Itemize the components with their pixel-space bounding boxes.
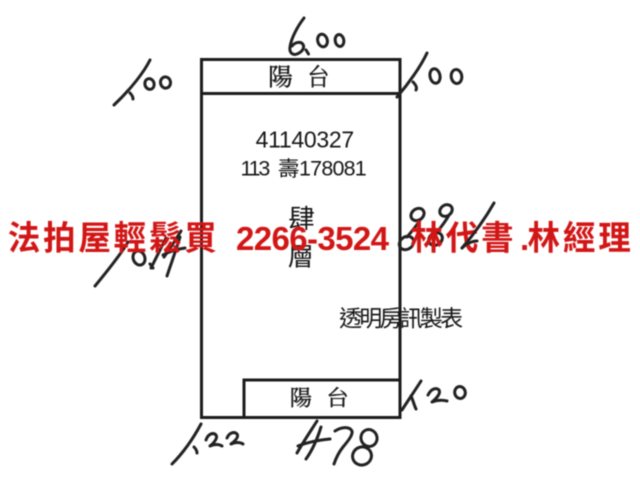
- svg-text:178081: 178081: [299, 157, 366, 181]
- svg-text:113: 113: [241, 157, 271, 181]
- svg-text:41140327: 41140327: [256, 126, 354, 152]
- svg-text:2266-3524: 2266-3524: [236, 220, 390, 257]
- svg-text:.: .: [520, 220, 529, 257]
